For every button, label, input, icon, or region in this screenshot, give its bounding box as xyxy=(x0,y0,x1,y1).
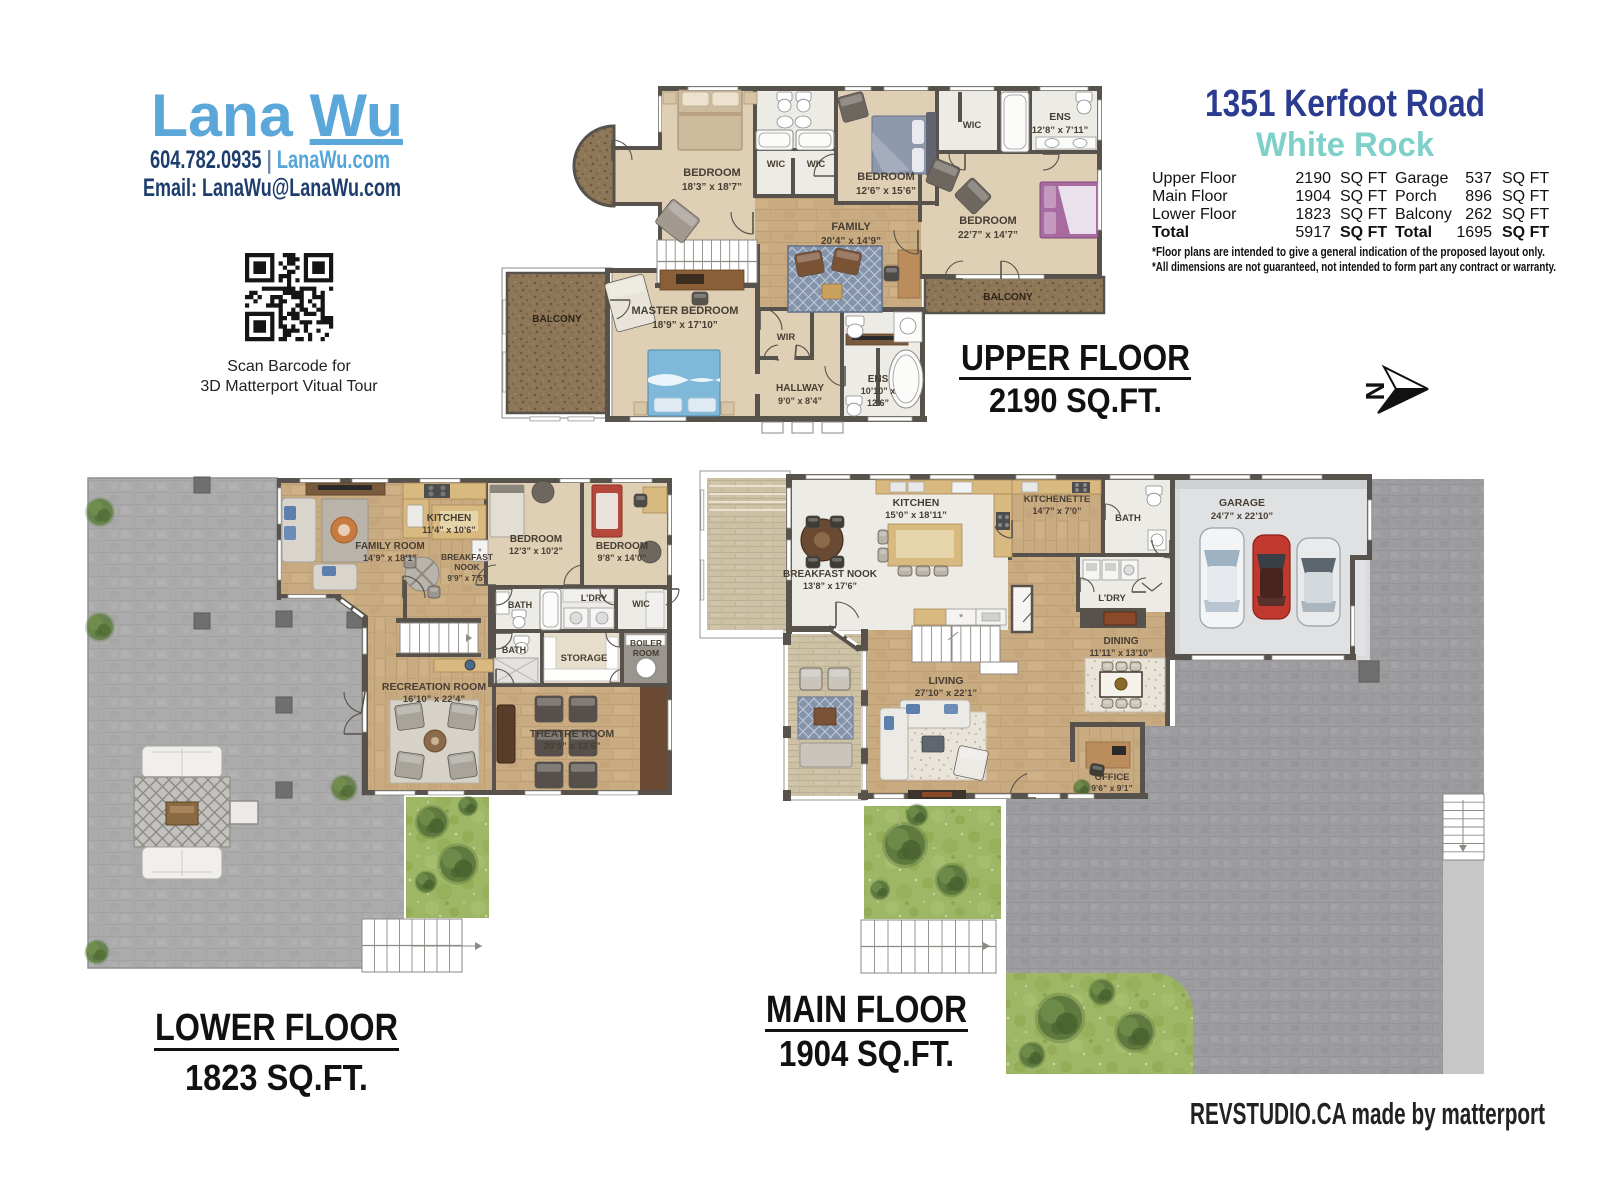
svg-text:SQ FT: SQ FT xyxy=(1502,170,1549,187)
svg-text:15’0” x 18’11”: 15’0” x 18’11” xyxy=(885,510,947,521)
svg-text:WIC: WIC xyxy=(767,159,786,170)
svg-text:24’7” x 22’10”: 24’7” x 22’10” xyxy=(1211,511,1274,522)
svg-text:WIR: WIR xyxy=(777,332,796,343)
svg-text:10’10” x: 10’10” x xyxy=(861,386,896,396)
svg-text:FAMILY: FAMILY xyxy=(831,221,871,233)
svg-text:Upper Floor: Upper Floor xyxy=(1152,170,1237,187)
svg-text:12’6” x 15’6”: 12’6” x 15’6” xyxy=(856,186,916,197)
svg-text:OFFICE: OFFICE xyxy=(1095,772,1130,783)
svg-text:SQ FT: SQ FT xyxy=(1340,188,1387,205)
svg-text:1823: 1823 xyxy=(1295,206,1331,223)
svg-text:20’4” x 14’9”: 20’4” x 14’9” xyxy=(821,236,881,247)
svg-text:Lower Floor: Lower Floor xyxy=(1152,206,1237,223)
svg-text:11’11” x 13’10”: 11’11” x 13’10” xyxy=(1089,648,1152,658)
svg-text:Lana Wu: Lana Wu xyxy=(151,82,403,149)
svg-text:Main Floor: Main Floor xyxy=(1152,188,1228,205)
svg-text:BOILER: BOILER xyxy=(630,638,662,648)
svg-text:RECREATION ROOM: RECREATION ROOM xyxy=(382,681,486,693)
svg-text:ENS: ENS xyxy=(868,374,889,385)
svg-text:BATH: BATH xyxy=(1115,513,1141,524)
svg-text:WIC: WIC xyxy=(632,599,650,609)
svg-text:5917: 5917 xyxy=(1295,224,1331,241)
svg-text:BREAKFAST NOOK: BREAKFAST NOOK xyxy=(783,569,878,580)
svg-text:1695: 1695 xyxy=(1456,224,1492,241)
svg-text:SQ FT: SQ FT xyxy=(1502,188,1549,205)
svg-text:12’8” x 7’11”: 12’8” x 7’11” xyxy=(1032,125,1089,136)
svg-text:DINING: DINING xyxy=(1104,636,1139,647)
svg-text:11’4” x 10’6”: 11’4” x 10’6” xyxy=(422,525,476,535)
svg-text:FAMILY ROOM: FAMILY ROOM xyxy=(355,541,424,552)
svg-text:Total: Total xyxy=(1152,224,1189,241)
svg-text:SQ FT: SQ FT xyxy=(1340,170,1387,187)
svg-text:Scan Barcode for: Scan Barcode for xyxy=(227,358,351,375)
svg-text:9’6” x 9’1”: 9’6” x 9’1” xyxy=(1091,783,1133,793)
svg-text:BALCONY: BALCONY xyxy=(532,314,582,325)
svg-text:*Floor plans are intended to g: *Floor plans are intended to give a gene… xyxy=(1152,244,1545,259)
svg-text:1823 SQ.FT.: 1823 SQ.FT. xyxy=(185,1057,368,1098)
svg-text:18’3” x 18’7”: 18’3” x 18’7” xyxy=(682,182,742,193)
svg-text:KITCHENETTE: KITCHENETTE xyxy=(1024,494,1091,505)
svg-text:WIC: WIC xyxy=(807,159,826,170)
svg-text:604.782.0935 | LanaWu.com: 604.782.0935 | LanaWu.com xyxy=(150,146,390,174)
svg-text:SQ FT: SQ FT xyxy=(1502,206,1549,223)
svg-text:NOOK: NOOK xyxy=(454,562,480,572)
svg-text:BATH: BATH xyxy=(502,645,526,655)
svg-text:Total: Total xyxy=(1395,224,1432,241)
svg-text:1351 Kerfoot Road: 1351 Kerfoot Road xyxy=(1205,83,1485,125)
svg-text:BEDROOM: BEDROOM xyxy=(683,167,740,179)
svg-text:9’9” x 7’5”: 9’9” x 7’5” xyxy=(447,574,486,583)
svg-text:N: N xyxy=(1360,382,1390,401)
svg-text:BEDROOM: BEDROOM xyxy=(596,541,648,552)
svg-text:16’10” x 22’4”: 16’10” x 22’4” xyxy=(403,694,466,705)
svg-text:REVSTUDIO.CA made by matterpor: REVSTUDIO.CA made by matterport xyxy=(1190,1096,1545,1131)
svg-text:*All dimensions are not guaran: *All dimensions are not guaranteed, not … xyxy=(1152,259,1556,274)
svg-text:12’3” x 10’2”: 12’3” x 10’2” xyxy=(509,546,563,556)
svg-text:1904 SQ.FT.: 1904 SQ.FT. xyxy=(779,1033,954,1074)
svg-text:L’DRY: L’DRY xyxy=(581,593,607,603)
svg-text:3D Matterport Vitual Tour: 3D Matterport Vitual Tour xyxy=(200,378,378,395)
svg-text:STORAGE: STORAGE xyxy=(561,653,608,664)
svg-text:262: 262 xyxy=(1465,206,1492,223)
svg-text:Porch: Porch xyxy=(1395,188,1437,205)
svg-text:SQ FT: SQ FT xyxy=(1502,224,1549,241)
svg-text:13’8” x 17’6”: 13’8” x 17’6” xyxy=(803,581,857,591)
svg-text:14’9” x 18’1”: 14’9” x 18’1” xyxy=(363,553,417,563)
svg-text:HALLWAY: HALLWAY xyxy=(776,383,824,394)
svg-text:27’10” x 22’1”: 27’10” x 22’1” xyxy=(915,688,978,699)
svg-text:KITCHEN: KITCHEN xyxy=(893,497,940,509)
svg-text:White Rock: White Rock xyxy=(1256,126,1434,164)
svg-text:BALCONY: BALCONY xyxy=(983,292,1033,303)
svg-text:BEDROOM: BEDROOM xyxy=(510,534,562,545)
svg-text:BEDROOM: BEDROOM xyxy=(857,171,914,183)
svg-text:LOWER FLOOR: LOWER FLOOR xyxy=(155,1007,398,1049)
svg-text:ROOM: ROOM xyxy=(633,648,659,658)
svg-text:22’7” x 14’7”: 22’7” x 14’7” xyxy=(958,230,1018,241)
svg-text:THEATRE ROOM: THEATRE ROOM xyxy=(530,728,615,740)
svg-text:537: 537 xyxy=(1465,170,1492,187)
svg-text:896: 896 xyxy=(1465,188,1492,205)
svg-text:WIC: WIC xyxy=(963,120,982,131)
svg-text:BREAKFAST: BREAKFAST xyxy=(441,552,494,562)
svg-text:Email: LanaWu@LanaWu.com: Email: LanaWu@LanaWu.com xyxy=(143,174,401,202)
svg-text:GARAGE: GARAGE xyxy=(1219,497,1265,509)
svg-text:SQ FT: SQ FT xyxy=(1340,206,1387,223)
svg-text:BEDROOM: BEDROOM xyxy=(959,215,1016,227)
svg-text:2190: 2190 xyxy=(1295,170,1331,187)
svg-text:Garage: Garage xyxy=(1395,170,1448,187)
svg-text:9’8” x 14’0”: 9’8” x 14’0” xyxy=(597,553,646,563)
svg-text:20’5” x 13’6”: 20’5” x 13’6” xyxy=(543,741,600,752)
svg-text:MASTER BEDROOM: MASTER BEDROOM xyxy=(632,305,739,317)
svg-text:2190 SQ.FT.: 2190 SQ.FT. xyxy=(989,382,1162,420)
svg-text:ENS: ENS xyxy=(1049,111,1071,123)
svg-text:MAIN FLOOR: MAIN FLOOR xyxy=(766,989,967,1031)
svg-text:18’9” x 17’10”: 18’9” x 17’10” xyxy=(652,320,718,331)
svg-text:L’DRY: L’DRY xyxy=(1098,593,1126,604)
svg-text:9’0” x 8’4”: 9’0” x 8’4” xyxy=(778,396,822,406)
svg-text:SQ FT: SQ FT xyxy=(1340,224,1387,241)
svg-text:*: * xyxy=(959,612,964,624)
svg-text:14’7” x 7’0”: 14’7” x 7’0” xyxy=(1032,506,1081,516)
svg-text:LIVING: LIVING xyxy=(928,675,963,687)
svg-text:KITCHEN: KITCHEN xyxy=(427,513,471,524)
svg-text:BATH: BATH xyxy=(508,600,532,610)
svg-text:12’6”: 12’6” xyxy=(867,398,889,408)
svg-text:1904: 1904 xyxy=(1295,188,1331,205)
svg-text:UPPER FLOOR: UPPER FLOOR xyxy=(961,337,1190,378)
svg-text:Balcony: Balcony xyxy=(1395,206,1452,223)
